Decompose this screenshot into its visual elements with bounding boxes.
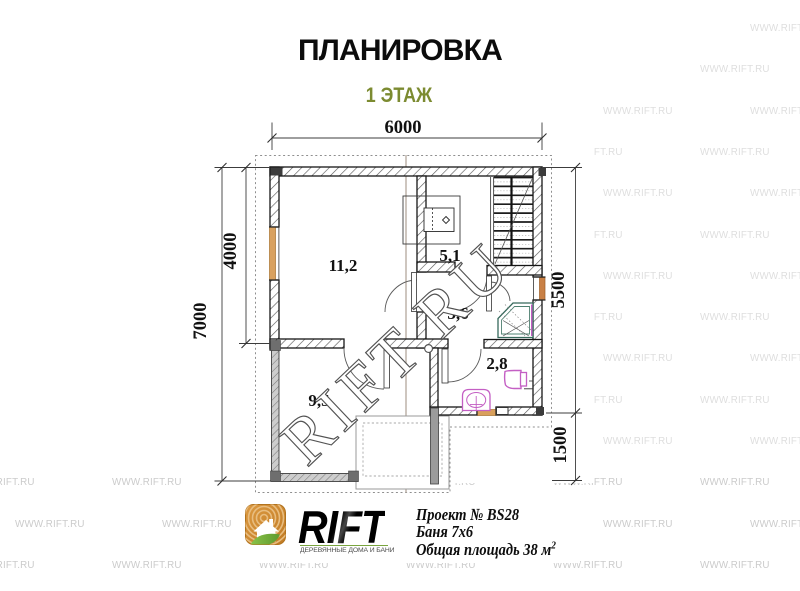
svg-text:6000: 6000 bbox=[385, 118, 422, 138]
svg-text:4000: 4000 bbox=[221, 233, 241, 270]
svg-text:1500: 1500 bbox=[551, 427, 571, 464]
svg-text:2,8: 2,8 bbox=[486, 354, 507, 373]
svg-text:7000: 7000 bbox=[191, 303, 211, 340]
svg-text:5500: 5500 bbox=[549, 272, 569, 309]
svg-text:11,2: 11,2 bbox=[329, 256, 358, 275]
